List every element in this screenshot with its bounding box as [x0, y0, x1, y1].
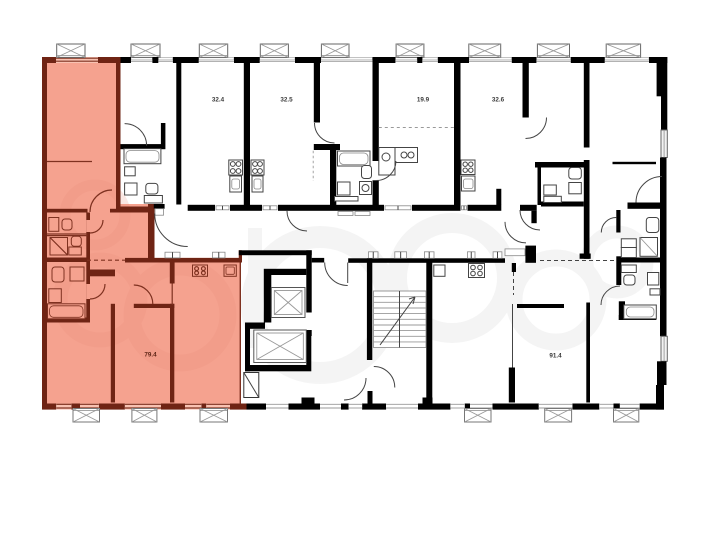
svg-text:32.6: 32.6 [492, 97, 505, 104]
svg-text:32.5: 32.5 [280, 97, 293, 104]
svg-text:19.9: 19.9 [417, 97, 430, 104]
svg-text:32.4: 32.4 [212, 97, 225, 104]
svg-text:79.4: 79.4 [144, 352, 157, 359]
svg-text:91.4: 91.4 [549, 353, 562, 360]
